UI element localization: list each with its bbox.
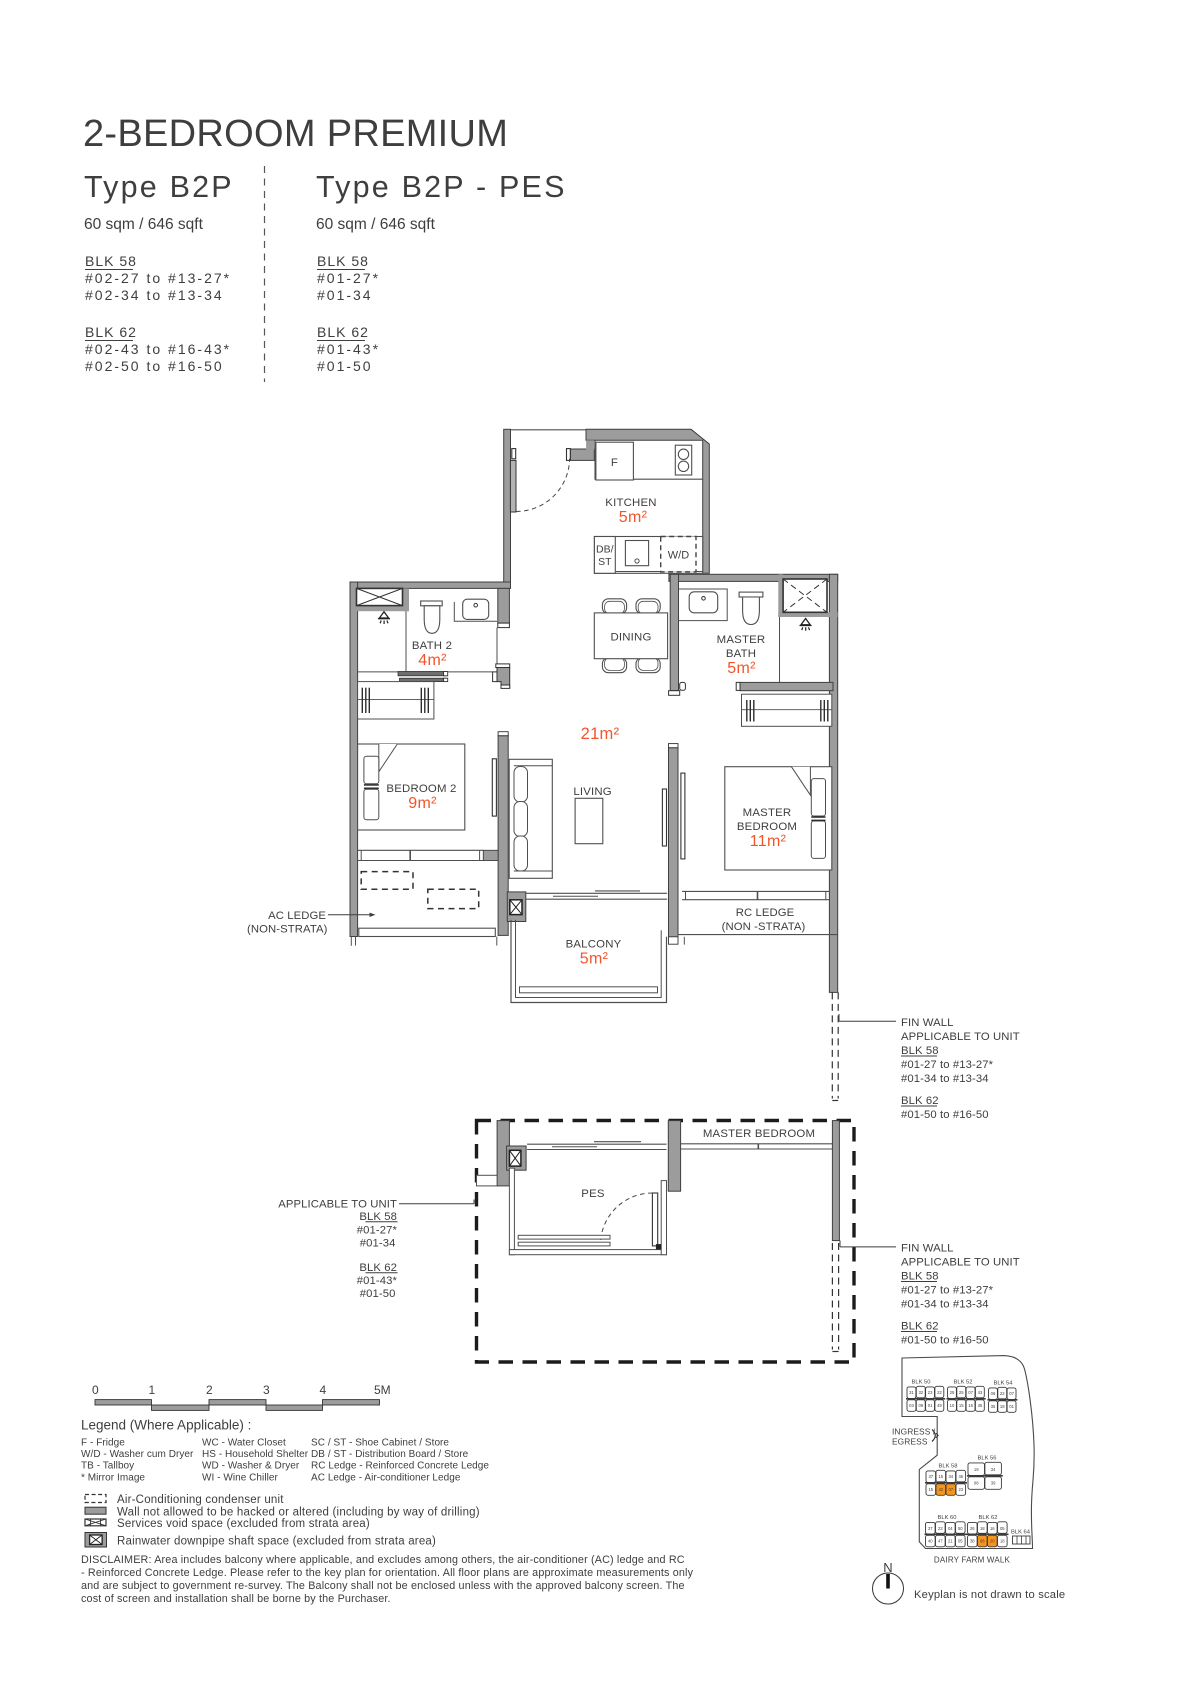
svg-text:DISCLAIMER: Area includes balc: DISCLAIMER: Area includes balcony where … xyxy=(81,1554,685,1566)
svg-text:BLK 60: BLK 60 xyxy=(937,1515,956,1521)
svg-text:06: 06 xyxy=(980,1539,985,1544)
svg-text:cost of screen and installatio: cost of screen and installation shall be… xyxy=(81,1593,391,1605)
svg-text:MASTER: MASTER xyxy=(743,807,792,819)
svg-text:F: F xyxy=(611,457,618,469)
svg-text:4: 4 xyxy=(320,1383,327,1397)
svg-text:BLK 62: BLK 62 xyxy=(901,1321,939,1333)
svg-text:03: 03 xyxy=(909,1403,914,1408)
svg-text:ST: ST xyxy=(598,556,612,568)
svg-text:BLK 50: BLK 50 xyxy=(911,1380,930,1386)
svg-text:FIN WALL: FIN WALL xyxy=(901,1243,953,1255)
svg-text:Air-Conditioning condenser uni: Air-Conditioning condenser unit xyxy=(117,1494,284,1506)
svg-text:#02-43 to #16-43*: #02-43 to #16-43* xyxy=(85,341,231,357)
svg-text:23: 23 xyxy=(928,1390,933,1395)
svg-text:#02-27 to #13-27*: #02-27 to #13-27* xyxy=(85,270,231,286)
svg-text:BLK 54: BLK 54 xyxy=(993,1381,1013,1387)
svg-text:34: 34 xyxy=(948,1474,953,1479)
svg-text:Services void space (excluded: Services void space (excluded from strat… xyxy=(117,1518,370,1530)
svg-text:BLK 58: BLK 58 xyxy=(317,253,369,269)
svg-text:BEDROOM: BEDROOM xyxy=(737,821,797,833)
svg-text:60 sqm / 646 sqft: 60 sqm / 646 sqft xyxy=(316,216,436,233)
svg-text:and are subject to government: and are subject to government re-survey.… xyxy=(81,1580,685,1592)
svg-text:BLK 58: BLK 58 xyxy=(85,253,137,269)
svg-text:#01-27*: #01-27* xyxy=(317,270,380,286)
svg-text:#01-27 to #13-27*: #01-27 to #13-27* xyxy=(901,1059,994,1071)
svg-text:21m²: 21m² xyxy=(581,725,620,743)
svg-text:#01-34 to #13-34: #01-34 to #13-34 xyxy=(901,1073,989,1085)
svg-text:21: 21 xyxy=(948,1539,953,1544)
svg-text:40: 40 xyxy=(928,1539,933,1544)
svg-text:49: 49 xyxy=(937,1403,942,1408)
svg-text:23: 23 xyxy=(958,1487,963,1492)
svg-text:26: 26 xyxy=(970,1526,975,1531)
svg-text:Rainwater downpipe shaft space: Rainwater downpipe shaft space (excluded… xyxy=(117,1536,436,1548)
svg-text:09: 09 xyxy=(918,1403,923,1408)
svg-text:INGRESS /: INGRESS / xyxy=(892,1427,936,1437)
svg-text:35: 35 xyxy=(978,1403,983,1408)
svg-text:18: 18 xyxy=(1000,1404,1005,1409)
svg-text:#01-34: #01-34 xyxy=(317,287,373,303)
svg-text:BALCONY: BALCONY xyxy=(566,939,622,951)
svg-text:5m²: 5m² xyxy=(727,660,756,677)
svg-text:BLK 52: BLK 52 xyxy=(953,1380,972,1386)
svg-text:(NON-STRATA): (NON-STRATA) xyxy=(247,924,328,936)
svg-text:Wall not allowed to be hacked: Wall not allowed to be hacked or altered… xyxy=(117,1506,480,1518)
svg-text:5M: 5M xyxy=(374,1383,391,1397)
svg-text:01: 01 xyxy=(928,1403,933,1408)
svg-text:15: 15 xyxy=(938,1474,943,1479)
svg-text:#01-43*: #01-43* xyxy=(357,1275,398,1287)
svg-text:DAIRY FARM WALK: DAIRY FARM WALK xyxy=(934,1556,1011,1565)
svg-text:N: N xyxy=(883,1560,892,1575)
svg-text:39: 39 xyxy=(991,1481,996,1486)
svg-text:34: 34 xyxy=(991,1467,996,1472)
svg-text:22: 22 xyxy=(937,1390,942,1395)
svg-text:37: 37 xyxy=(928,1474,933,1479)
svg-text:01: 01 xyxy=(1009,1404,1014,1409)
svg-text:APPLICABLE TO UNIT: APPLICABLE TO UNIT xyxy=(278,1199,397,1211)
svg-text:05: 05 xyxy=(1000,1526,1005,1531)
svg-text:#01-27*: #01-27* xyxy=(357,1225,398,1237)
svg-text:PES: PES xyxy=(581,1188,605,1200)
svg-text:DINING: DINING xyxy=(610,632,651,644)
svg-text:AC LEDGE: AC LEDGE xyxy=(268,910,326,922)
svg-text:#01-27 to #13-27*: #01-27 to #13-27* xyxy=(901,1285,994,1297)
svg-text:18: 18 xyxy=(1000,1539,1005,1544)
svg-text:9m²: 9m² xyxy=(408,795,437,812)
svg-text:BLK 62: BLK 62 xyxy=(359,1262,397,1274)
svg-text:(NON -STRATA): (NON -STRATA) xyxy=(722,921,806,933)
svg-text:W/D: W/D xyxy=(668,550,689,562)
svg-text:TB - Tallboy: TB - Tallboy xyxy=(81,1461,134,1472)
svg-text:16: 16 xyxy=(968,1403,973,1408)
svg-text:11m²: 11m² xyxy=(750,833,787,850)
svg-text:MASTER: MASTER xyxy=(717,634,766,646)
svg-text:5m²: 5m² xyxy=(580,951,609,968)
svg-text:5m²: 5m² xyxy=(619,509,648,526)
svg-text:60 sqm / 646 sqft: 60 sqm / 646 sqft xyxy=(84,216,204,233)
svg-text:22: 22 xyxy=(1000,1391,1005,1396)
svg-text:* Mirror Image: * Mirror Image xyxy=(81,1472,145,1483)
svg-text:SC / ST - Shoe Cabinet / Store: SC / ST - Shoe Cabinet / Store xyxy=(311,1437,449,1448)
svg-text:2-BEDROOM PREMIUM: 2-BEDROOM PREMIUM xyxy=(83,113,508,155)
svg-text:15: 15 xyxy=(959,1403,964,1408)
svg-text:#02-50 to #16-50: #02-50 to #16-50 xyxy=(85,358,224,374)
svg-text:06: 06 xyxy=(991,1391,996,1396)
svg-text:FIN WALL: FIN WALL xyxy=(901,1017,953,1029)
svg-text:43: 43 xyxy=(978,1390,983,1395)
svg-text:50: 50 xyxy=(958,1526,963,1531)
svg-text:WI - Wine Chiller: WI - Wine Chiller xyxy=(202,1472,278,1483)
svg-text:1: 1 xyxy=(149,1383,156,1397)
svg-text:Legend (Where Applicable) :: Legend (Where Applicable) : xyxy=(81,1418,251,1433)
svg-text:25: 25 xyxy=(959,1390,964,1395)
svg-text:23: 23 xyxy=(938,1526,943,1531)
svg-text:07: 07 xyxy=(1009,1391,1014,1396)
svg-text:07: 07 xyxy=(968,1390,973,1395)
svg-text:#01-50: #01-50 xyxy=(360,1288,396,1300)
svg-text:Type B2P: Type B2P xyxy=(84,170,234,204)
svg-text:DB/: DB/ xyxy=(596,544,614,556)
svg-text:BLK 62: BLK 62 xyxy=(317,324,369,340)
svg-text:0: 0 xyxy=(92,1383,99,1397)
svg-text:BLK 58: BLK 58 xyxy=(901,1271,939,1283)
svg-text:32: 32 xyxy=(918,1390,923,1395)
svg-text:MASTER BEDROOM: MASTER BEDROOM xyxy=(703,1128,815,1140)
svg-text:BLK 56: BLK 56 xyxy=(977,1456,996,1462)
svg-text:37: 37 xyxy=(928,1526,933,1531)
svg-text:10: 10 xyxy=(950,1403,955,1408)
svg-text:BATH 2: BATH 2 xyxy=(412,640,452,652)
svg-text:19: 19 xyxy=(974,1467,979,1472)
svg-text:- Reinforced Concrete Ledge. P: - Reinforced Concrete Ledge. Please refe… xyxy=(81,1567,694,1579)
svg-text:#01-34 to #13-34: #01-34 to #13-34 xyxy=(901,1299,989,1311)
svg-text:KITCHEN: KITCHEN xyxy=(605,497,656,509)
svg-text:#01-50 to #16-50: #01-50 to #16-50 xyxy=(901,1335,989,1347)
svg-text:BLK 58: BLK 58 xyxy=(901,1045,939,1057)
svg-text:LIVING: LIVING xyxy=(573,786,612,798)
svg-text:BEDROOM 2: BEDROOM 2 xyxy=(386,783,456,795)
svg-text:#01-50 to #16-50: #01-50 to #16-50 xyxy=(901,1109,989,1121)
svg-text:31: 31 xyxy=(909,1390,914,1395)
svg-text:46: 46 xyxy=(958,1474,963,1479)
svg-text:04: 04 xyxy=(948,1526,953,1531)
svg-text:BLK 62: BLK 62 xyxy=(978,1515,997,1521)
svg-text:APPLICABLE TO UNIT: APPLICABLE TO UNIT xyxy=(901,1031,1020,1043)
svg-text:35: 35 xyxy=(991,1404,996,1409)
svg-text:42: 42 xyxy=(938,1487,943,1492)
svg-text:3: 3 xyxy=(263,1383,270,1397)
svg-text:07: 07 xyxy=(948,1487,953,1492)
svg-text:18: 18 xyxy=(980,1526,985,1531)
svg-text:#02-34 to #13-34: #02-34 to #13-34 xyxy=(85,287,224,303)
svg-text:15: 15 xyxy=(928,1487,933,1492)
svg-text:BLK 64: BLK 64 xyxy=(1011,1530,1031,1536)
svg-text:Type B2P - PES: Type B2P - PES xyxy=(316,170,567,204)
svg-text:WD - Washer & Dryer: WD - Washer & Dryer xyxy=(202,1461,300,1472)
svg-text:38: 38 xyxy=(970,1539,975,1544)
svg-text:2: 2 xyxy=(206,1383,213,1397)
svg-text:#01-43*: #01-43* xyxy=(317,341,380,357)
svg-text:W/D - Washer cum Dryer: W/D - Washer cum Dryer xyxy=(81,1449,194,1460)
svg-text:BLK 58: BLK 58 xyxy=(938,1464,957,1470)
svg-text:4m²: 4m² xyxy=(418,652,447,669)
svg-text:BLK 58: BLK 58 xyxy=(359,1211,397,1223)
svg-text:RC LEDGE: RC LEDGE xyxy=(736,907,795,919)
svg-text:EGRESS: EGRESS xyxy=(892,1437,928,1447)
svg-text:47: 47 xyxy=(938,1539,943,1544)
svg-text:RC Ledge - Reinforced Concrete: RC Ledge - Reinforced Concrete Ledge xyxy=(311,1461,489,1472)
svg-text:BLK 62: BLK 62 xyxy=(901,1095,939,1107)
svg-text:#01-50: #01-50 xyxy=(317,358,373,374)
svg-text:Keyplan is not drawn to scale: Keyplan is not drawn to scale xyxy=(914,1589,1065,1601)
svg-text:APPLICABLE TO UNIT: APPLICABLE TO UNIT xyxy=(901,1257,1020,1269)
svg-text:DB / ST - Distribution Board /: DB / ST - Distribution Board / Store xyxy=(311,1449,469,1460)
svg-text:25: 25 xyxy=(950,1390,955,1395)
svg-text:HS - Household Shelter: HS - Household Shelter xyxy=(202,1449,309,1460)
svg-text:BATH: BATH xyxy=(726,648,756,660)
svg-text:#01-34: #01-34 xyxy=(360,1238,396,1250)
svg-text:F - Fridge: F - Fridge xyxy=(81,1437,125,1448)
svg-text:08: 08 xyxy=(974,1481,979,1486)
svg-text:AC Ledge - Air-conditioner Led: AC Ledge - Air-conditioner Ledge xyxy=(311,1472,461,1483)
svg-text:20: 20 xyxy=(990,1539,995,1544)
svg-text:05: 05 xyxy=(958,1539,963,1544)
svg-text:WC - Water Closet: WC - Water Closet xyxy=(202,1437,286,1448)
svg-text:16: 16 xyxy=(990,1526,995,1531)
svg-text:BLK 62: BLK 62 xyxy=(85,324,137,340)
